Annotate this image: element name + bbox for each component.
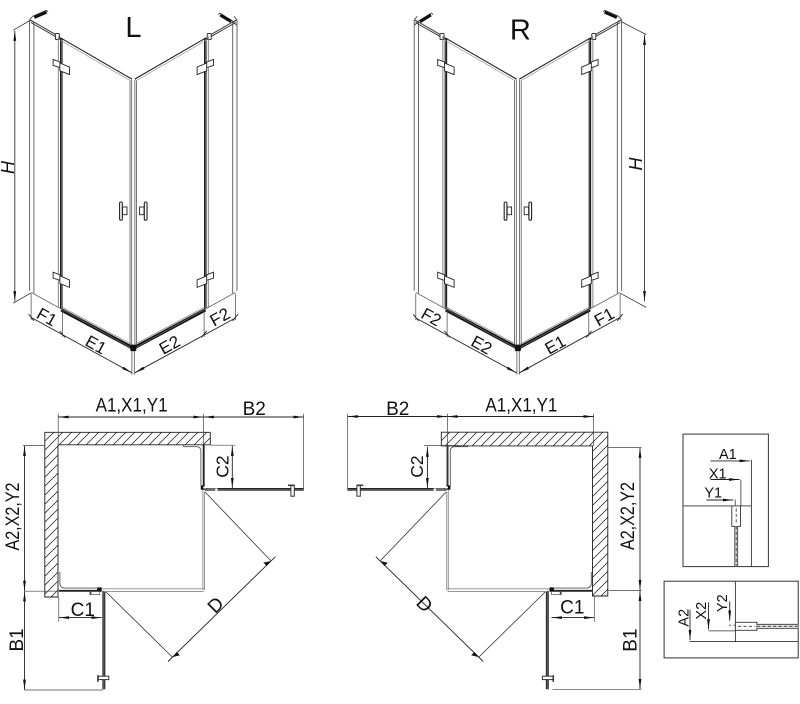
svg-text:E1: E1	[82, 332, 109, 359]
svg-text:A1,X1,Y1: A1,X1,Y1	[485, 396, 557, 417]
svg-text:F2: F2	[418, 304, 445, 330]
svg-text:L: L	[125, 12, 141, 44]
svg-text:H: H	[0, 160, 18, 174]
svg-text:H: H	[626, 157, 646, 171]
svg-text:B1: B1	[7, 628, 28, 651]
svg-text:A2,X2,Y2: A2,X2,Y2	[3, 483, 24, 551]
svg-text:Y1: Y1	[704, 486, 722, 502]
svg-text:C1: C1	[71, 600, 95, 621]
svg-text:B2: B2	[243, 399, 266, 420]
svg-text:F2: F2	[207, 304, 234, 330]
svg-text:A1: A1	[719, 447, 737, 463]
svg-text:Y2: Y2	[715, 594, 731, 612]
svg-text:D: D	[204, 593, 229, 618]
svg-text:E1: E1	[542, 332, 569, 359]
svg-text:C2: C2	[407, 455, 427, 477]
svg-text:A2: A2	[676, 609, 692, 627]
svg-text:C2: C2	[212, 455, 232, 477]
svg-text:B2: B2	[386, 399, 409, 420]
svg-text:R: R	[510, 15, 531, 47]
svg-text:F1: F1	[591, 304, 618, 330]
svg-text:A1,X1,Y1: A1,X1,Y1	[96, 396, 168, 417]
svg-text:B1: B1	[621, 628, 642, 651]
svg-text:A2,X2,Y2: A2,X2,Y2	[618, 482, 639, 550]
svg-text:C1: C1	[560, 598, 584, 619]
svg-text:D: D	[412, 593, 437, 618]
svg-text:X2: X2	[694, 602, 710, 620]
svg-text:F1: F1	[33, 304, 60, 330]
svg-text:X1: X1	[709, 466, 727, 482]
